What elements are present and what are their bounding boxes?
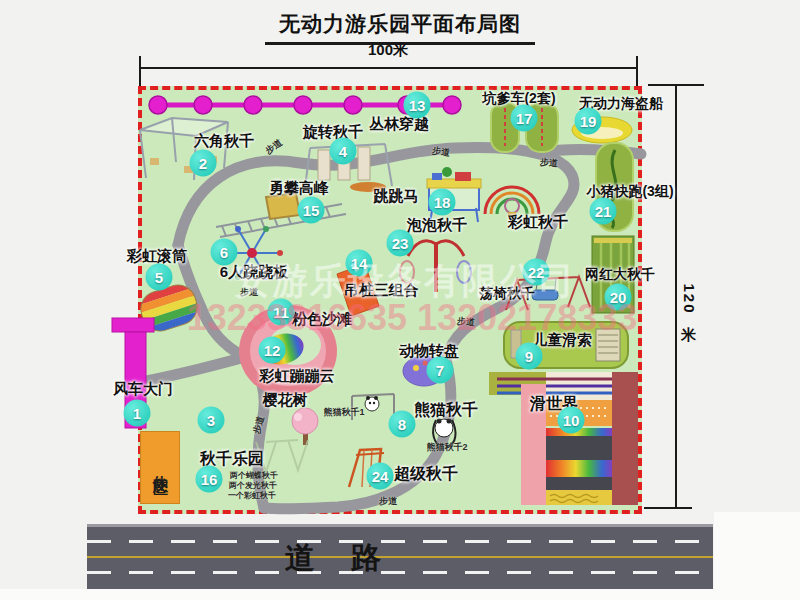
attraction-marker-24[interactable]: 24 <box>367 463 394 490</box>
attraction-marker-2[interactable]: 2 <box>190 150 217 177</box>
attraction-marker-19[interactable]: 19 <box>575 108 602 135</box>
watermark-phone: 13233816635 13202178333 <box>187 297 637 339</box>
attraction-marker-8[interactable]: 8 <box>389 411 416 438</box>
attraction-marker-9[interactable]: 9 <box>516 343 543 370</box>
attraction-marker-3[interactable]: 3 <box>198 407 225 434</box>
dimension-tick-right-bottom <box>644 507 692 509</box>
dimension-line-right <box>675 85 677 509</box>
attraction-marker-13[interactable]: 13 <box>404 92 431 119</box>
attraction-marker-17[interactable]: 17 <box>511 105 538 132</box>
width-dimension-label: 100米 <box>368 41 408 60</box>
dimension-tick-right-top <box>648 84 704 86</box>
attraction-marker-5[interactable]: 5 <box>146 264 173 291</box>
corner-patch <box>714 512 800 600</box>
attraction-marker-16[interactable]: 16 <box>196 466 223 493</box>
attraction-marker-12[interactable]: 12 <box>259 337 286 364</box>
attraction-marker-10[interactable]: 10 <box>558 407 585 434</box>
attraction-marker-21[interactable]: 21 <box>590 198 617 225</box>
road-dashed-line-top <box>87 540 713 543</box>
road-band: 道 路 <box>87 524 713 592</box>
dimension-line-top <box>140 67 637 69</box>
rest-area-box: 休憩区 <box>140 431 180 504</box>
page-title: 无动力游乐园平面布局图 <box>265 8 535 45</box>
attraction-marker-4[interactable]: 4 <box>330 138 357 165</box>
playground-plan-screenshot: 无动力游乐园平面布局图 100米 120米 <box>0 0 800 600</box>
road-label: 道 路 <box>285 538 395 579</box>
attraction-marker-15[interactable]: 15 <box>298 197 325 224</box>
attraction-marker-18[interactable]: 18 <box>429 189 456 216</box>
attraction-marker-7[interactable]: 7 <box>427 357 454 384</box>
bottom-patch <box>0 589 800 600</box>
attraction-marker-1[interactable]: 1 <box>124 400 151 427</box>
road-dashed-line-bottom <box>87 571 713 574</box>
height-dimension-label: 120米 <box>679 283 698 316</box>
road-center-line <box>87 556 713 558</box>
attraction-marker-23[interactable]: 23 <box>387 230 414 257</box>
